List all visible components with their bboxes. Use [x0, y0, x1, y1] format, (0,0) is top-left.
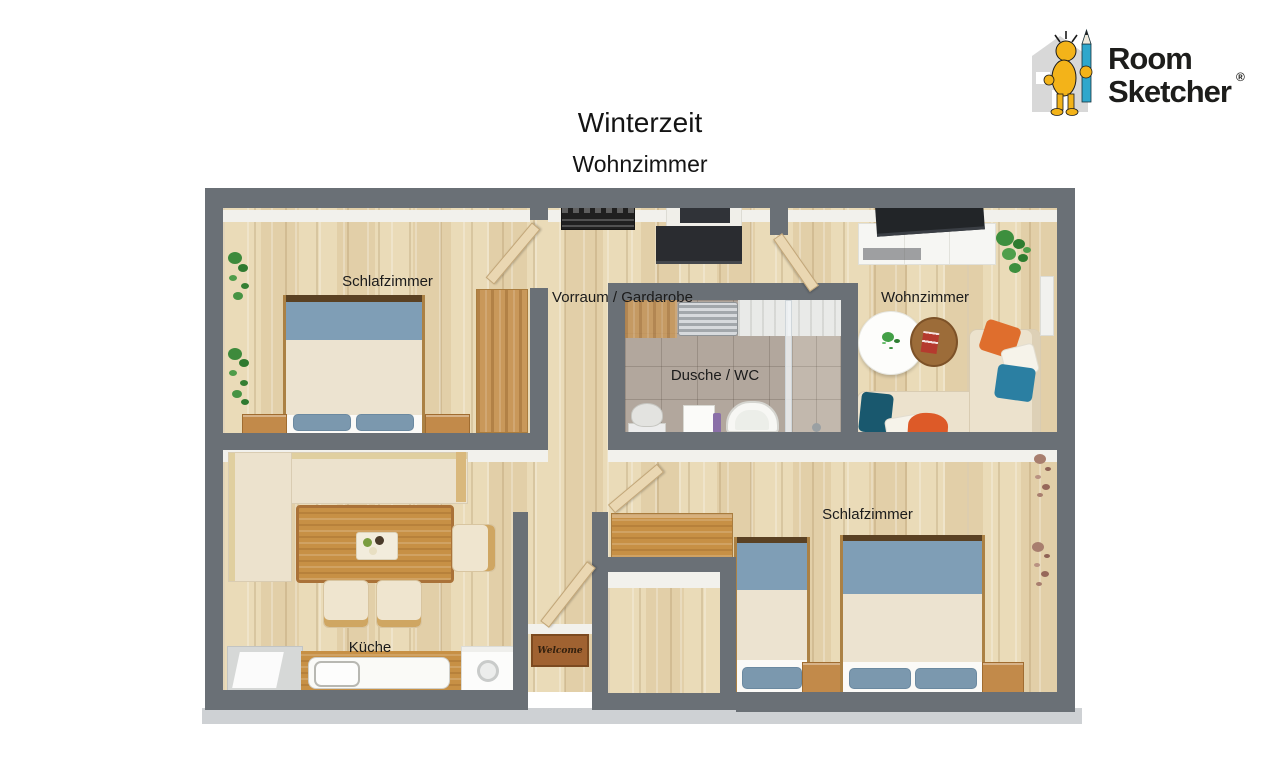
- room-label-living-room: Wohnzimmer: [845, 289, 1005, 306]
- wall-bedroom2-entry-stub: [592, 512, 608, 557]
- bed-mattress: [286, 340, 422, 415]
- wall-mid-right: [608, 432, 1057, 450]
- serving-tray: [356, 532, 398, 560]
- wall-storage-right: [720, 557, 736, 710]
- bathtub-basin: [735, 410, 769, 430]
- sink-basin: [314, 661, 360, 687]
- dried-flowers-icon: [1032, 542, 1044, 552]
- sofa-pillow-teal: [994, 364, 1036, 403]
- wall-plant-icon: [228, 348, 242, 360]
- cabinet-front: [232, 652, 284, 688]
- room-label-hallway: Vorraum / Gardarobe: [530, 289, 715, 306]
- bed-pillow: [293, 414, 351, 431]
- entrance-threshold: [528, 624, 592, 634]
- washer-door: [477, 660, 499, 682]
- bed-pillow: [356, 414, 414, 431]
- floor-plan-page: Winterzeit Wohnzimmer Room Sketcher ®: [0, 0, 1280, 777]
- plan-subtitle: Wohnzimmer: [440, 151, 840, 178]
- bed-mattress: [737, 590, 807, 660]
- fruit-light: [369, 547, 377, 555]
- fruit-dark: [375, 536, 384, 545]
- wall-storage-top: [592, 557, 736, 572]
- dresser-bedroom2: [611, 513, 733, 558]
- logo-word-sketcher: Sketcher: [1108, 75, 1231, 108]
- bed-blanket: [737, 543, 807, 590]
- toilet-bowl: [631, 403, 663, 427]
- shower-drain: [812, 423, 821, 432]
- bed-mattress: [843, 594, 982, 662]
- wall-living-stub: [770, 188, 788, 235]
- wall-storage-bottom: [592, 693, 736, 710]
- wall-outer-bottom-left: [205, 690, 528, 710]
- welcome-mat-text: Welcome: [537, 646, 582, 656]
- piano-body: [656, 226, 742, 264]
- double-bed-bedroom1: [283, 295, 425, 433]
- wall-face-bedroom2: [608, 450, 1057, 462]
- console-vent: [863, 248, 921, 260]
- wall-outer-top: [205, 188, 1075, 208]
- wall-outer-bottom-right: [736, 692, 1075, 712]
- wall-bedroom1-upper: [530, 188, 548, 220]
- logo-wordmark: Room Sketcher: [1108, 42, 1231, 108]
- wall-mid-left: [205, 433, 548, 450]
- kitchen-corner-cabinet: [227, 646, 303, 694]
- dining-chair: [323, 580, 369, 628]
- bench-armrest: [456, 452, 466, 502]
- book-on-table: [921, 331, 940, 354]
- bed-footboard: [286, 295, 422, 302]
- plan-title: Winterzeit: [440, 107, 840, 139]
- room-label-bedroom-top-left: Schlafzimmer: [305, 273, 470, 290]
- wall-storage-left: [592, 557, 608, 710]
- nightstand-right: [425, 414, 470, 435]
- dried-flowers-icon: [1034, 454, 1046, 464]
- nightstand-right: [982, 662, 1024, 694]
- dining-chair: [452, 524, 496, 572]
- wall-bedroom1-lower: [530, 288, 548, 450]
- wardrobe-bedroom1: [476, 289, 528, 433]
- roomsketcher-mascot: [1026, 26, 1104, 120]
- welcome-mat: Welcome: [531, 634, 589, 667]
- single-bed-bedroom2: [734, 537, 810, 692]
- logo-word-room: Room: [1108, 42, 1231, 75]
- storage-room-floor: [608, 588, 720, 693]
- room-label-bedroom-bottom-right: Schlafzimmer: [785, 506, 950, 523]
- room-label-kitchen: Küche: [320, 639, 420, 656]
- bed-pillow: [742, 667, 802, 689]
- table-plant-icon: [882, 332, 894, 342]
- dining-chair: [376, 580, 422, 628]
- wall-radiator: [1040, 276, 1054, 336]
- nightstand-left: [242, 414, 287, 435]
- bed-blanket: [286, 302, 422, 340]
- room-label-bathroom: Dusche / WC: [640, 367, 790, 384]
- bed-blanket: [843, 541, 982, 594]
- wall-face-bedroom1: [223, 210, 530, 222]
- corner-bench-left: [228, 452, 292, 582]
- registered-trademark-symbol: ®: [1236, 70, 1245, 84]
- corner-plant-icon: [996, 230, 1014, 246]
- fruit-green: [363, 538, 372, 547]
- wall-kitchen-entry: [513, 512, 528, 708]
- bed-pillow: [849, 668, 911, 689]
- bathroom-sink-cabinet: [683, 405, 715, 435]
- kitchen-sink-unit: [308, 657, 450, 689]
- washing-machine: [461, 646, 515, 694]
- towel-radiator: [678, 302, 738, 336]
- double-bed-bedroom2: [840, 535, 985, 692]
- wall-plant-icon: [228, 252, 242, 264]
- shampoo-bottle: [713, 413, 721, 433]
- wall-outer-right: [1057, 188, 1075, 712]
- bed-pillow: [915, 668, 977, 689]
- storage-room-wall-face: [608, 572, 720, 588]
- piano-music-rest: [680, 207, 730, 223]
